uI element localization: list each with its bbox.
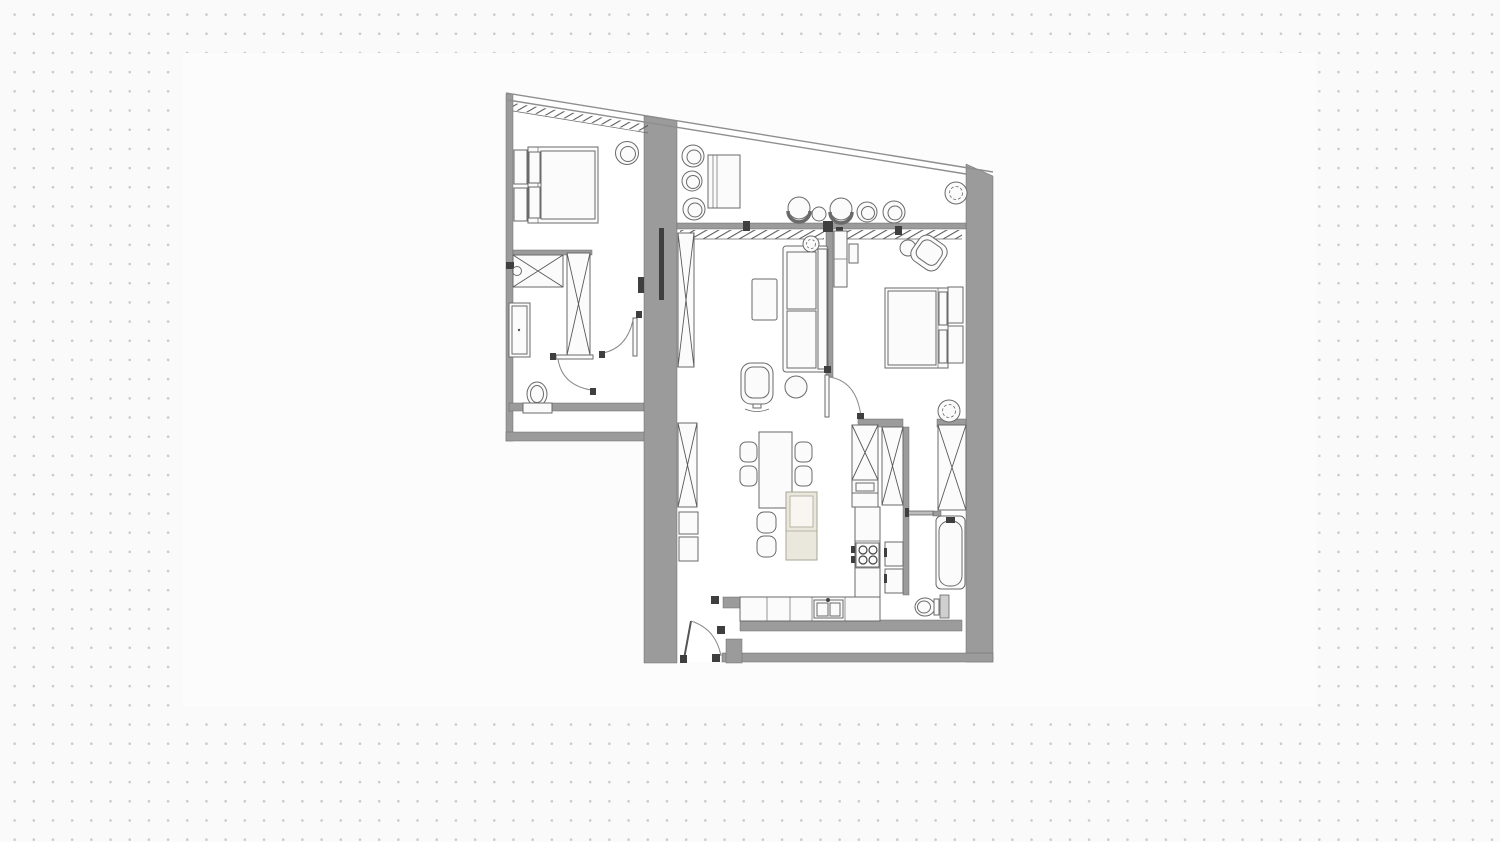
wardrobe-x: [678, 423, 697, 507]
wardrobe-x: [567, 253, 590, 355]
dining-chair: [795, 442, 812, 462]
bathtub: [936, 516, 965, 589]
pouf: [785, 376, 807, 398]
dining-chair: [795, 466, 812, 486]
bath-wall-stub: [933, 511, 941, 516]
bed-2: [885, 288, 948, 368]
kitchen-counter-bottom: [740, 597, 880, 621]
coffee-table: [752, 279, 777, 320]
plant: [803, 236, 819, 252]
lounge-chair: [788, 197, 810, 222]
tall-cabinet-x: [852, 425, 878, 480]
balcony-table: [708, 155, 740, 208]
shower-tray: [506, 255, 563, 287]
entry-jamb-bottom: [726, 639, 742, 663]
wardrobe-x: [678, 233, 694, 367]
pocket-door: [659, 228, 664, 300]
bottom-exterior-wall: [722, 653, 993, 662]
bottom-inner-wall: [740, 620, 962, 631]
kitchen-island: [786, 492, 817, 560]
central-structural-wall: [644, 116, 677, 663]
side-table: [812, 207, 826, 221]
bath-shelf: [940, 595, 949, 618]
nightstand: [514, 150, 527, 184]
dining-chair: [740, 466, 757, 486]
round-chair: [616, 142, 639, 165]
dining-chair: [740, 442, 757, 462]
sofa: [783, 246, 828, 372]
plant: [945, 182, 967, 204]
nightstand: [948, 326, 963, 363]
right-exterior-wall: [966, 164, 993, 662]
oven-stack: [852, 480, 878, 507]
entry-jamb-top: [723, 597, 742, 608]
nightstand: [514, 188, 527, 221]
open-shelves: [679, 512, 698, 561]
page-background: { "canvas": {"width": 1500, "height": 84…: [0, 0, 1500, 842]
storage-column: [509, 303, 530, 357]
nightstand: [948, 287, 963, 323]
wardrobe-x: [938, 425, 966, 510]
wardrobe-x: [882, 427, 903, 505]
island-chair: [757, 512, 776, 533]
window-sill-wall: [677, 223, 966, 229]
bed-1: [528, 147, 598, 223]
plant: [938, 400, 960, 422]
left-bottom-exterior-wall: [506, 432, 645, 441]
lounge-chair: [830, 198, 852, 223]
floor-plan: [0, 0, 1500, 842]
island-chair: [757, 536, 776, 557]
